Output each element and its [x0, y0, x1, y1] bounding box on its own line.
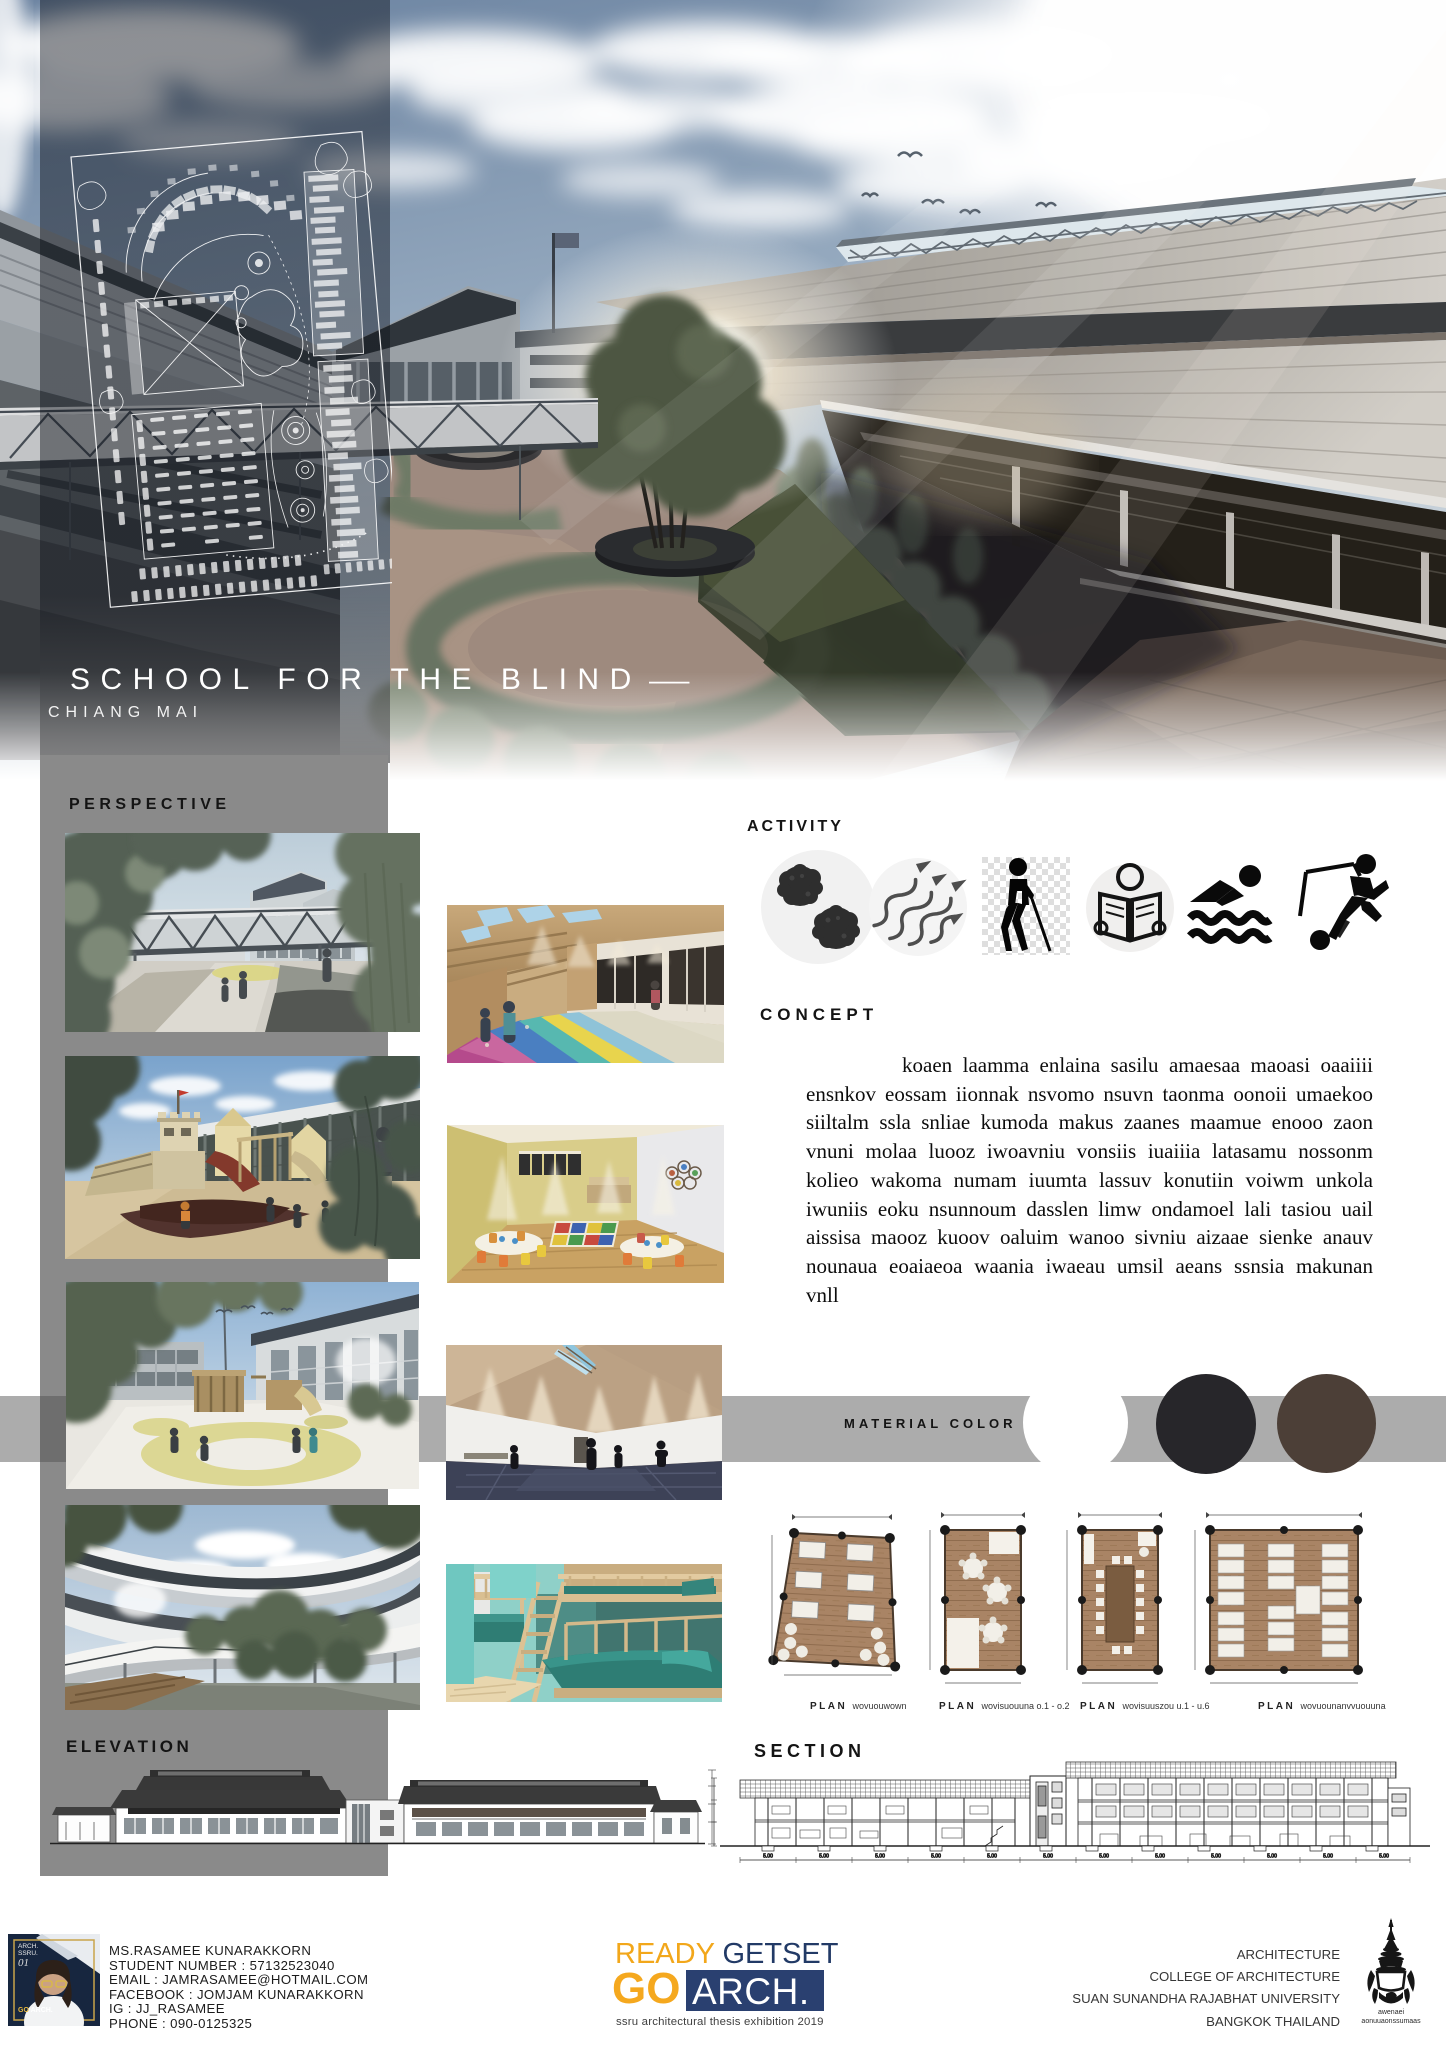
- svg-text:aonuuaonssumaas: aonuuaonssumaas: [1361, 2018, 1421, 2025]
- svg-text:5.00: 5.00: [1379, 1854, 1389, 1860]
- svg-text:5.00: 5.00: [931, 1854, 941, 1860]
- svg-text:5.00: 5.00: [1099, 1854, 1109, 1860]
- svg-text:GO ARCH.: GO ARCH.: [18, 2007, 53, 2014]
- svg-text:5.00: 5.00: [1267, 1854, 1277, 1860]
- svg-text:SSRU.: SSRU.: [18, 1950, 38, 1957]
- svg-text:5.00: 5.00: [1043, 1854, 1053, 1860]
- svg-text:ARCH.: ARCH.: [18, 1943, 38, 1950]
- svg-text:01: 01: [18, 1957, 29, 1969]
- svg-text:5.00: 5.00: [1155, 1854, 1165, 1860]
- svg-text:5.00: 5.00: [763, 1854, 773, 1860]
- svg-text:5.00: 5.00: [1323, 1854, 1333, 1860]
- svg-text:5.00: 5.00: [875, 1854, 885, 1860]
- svg-text:5.00: 5.00: [1211, 1854, 1221, 1860]
- svg-text:5.00: 5.00: [987, 1854, 997, 1860]
- svg-text:awenaei: awenaei: [1378, 2009, 1405, 2016]
- svg-text:5.00: 5.00: [819, 1854, 829, 1860]
